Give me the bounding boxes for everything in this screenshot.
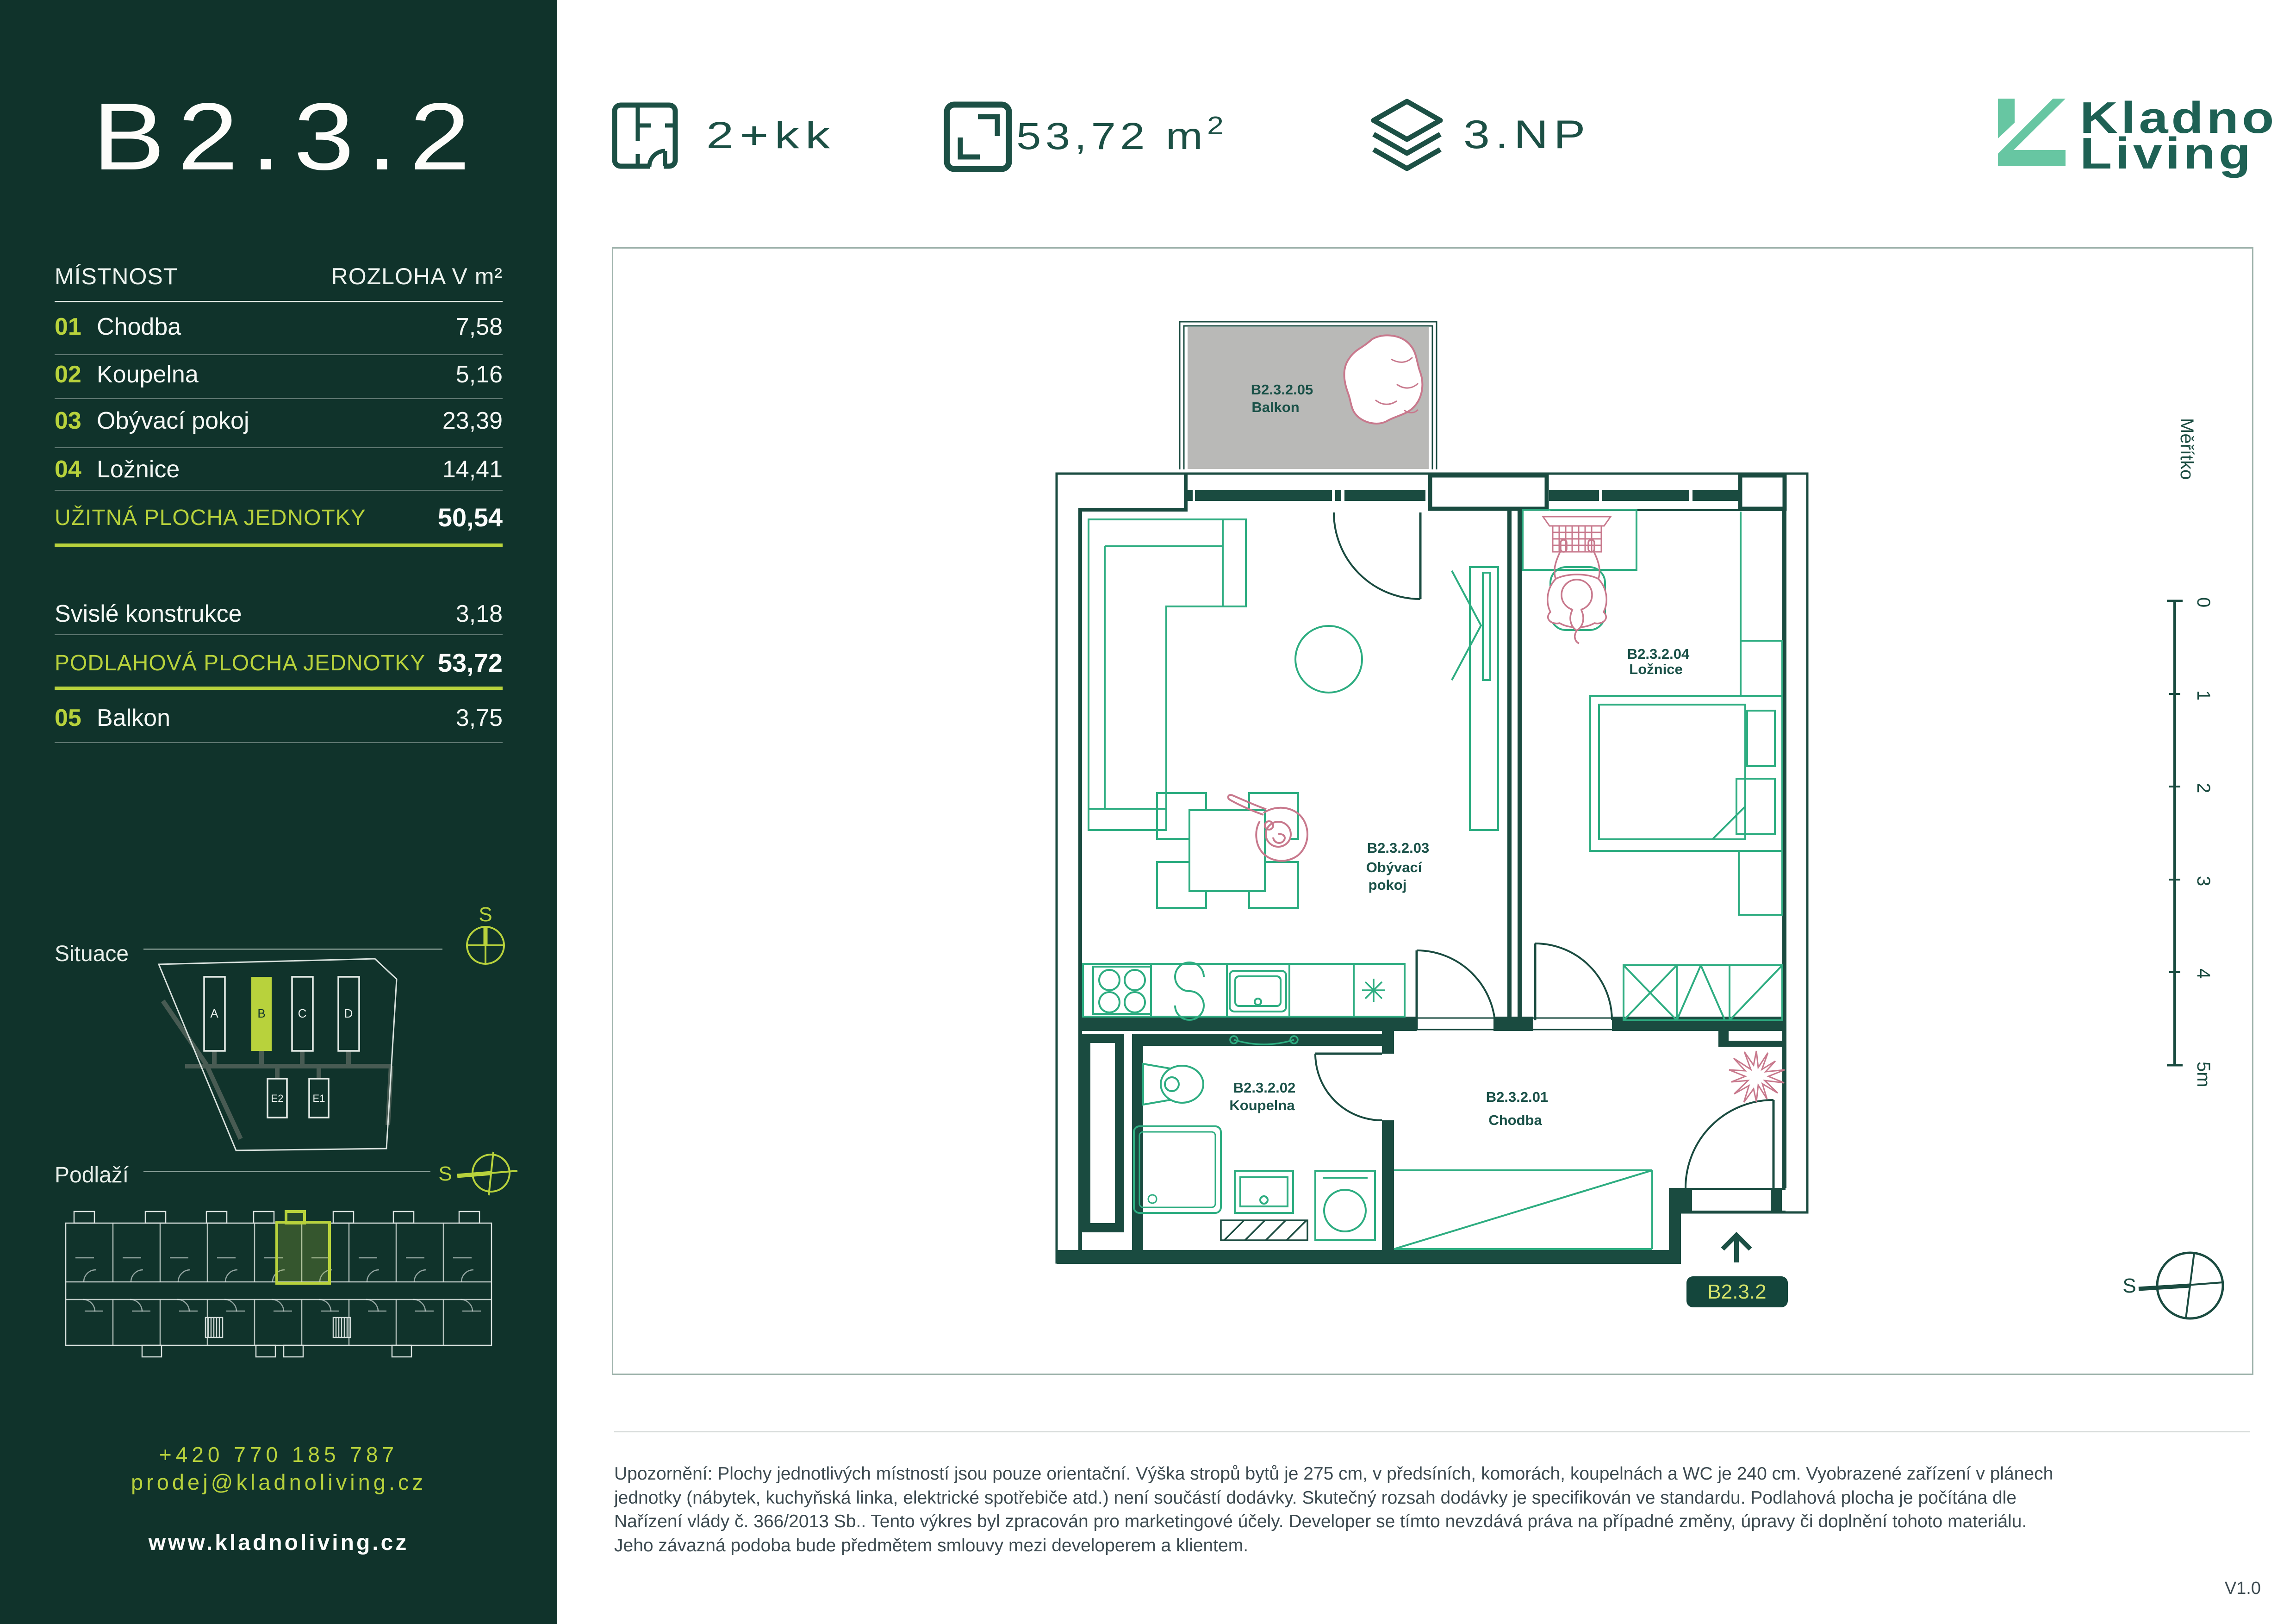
svg-text:S: S xyxy=(2122,1274,2136,1297)
svg-text:B2.3.2.01: B2.3.2.01 xyxy=(1486,1089,1548,1105)
svg-text:Měřítko: Měřítko xyxy=(2177,418,2197,480)
svg-text:B2.3.2.04: B2.3.2.04 xyxy=(1627,646,1690,662)
svg-text:Balkon: Balkon xyxy=(1251,399,1299,415)
svg-text:2: 2 xyxy=(2193,783,2214,793)
svg-text:B2.3.2: B2.3.2 xyxy=(1707,1280,1766,1303)
svg-text:pokoj: pokoj xyxy=(1369,877,1407,893)
svg-text:Obývací: Obývací xyxy=(1366,859,1423,875)
svg-text:Chodba: Chodba xyxy=(1488,1112,1542,1128)
svg-text:B2.3.2.02: B2.3.2.02 xyxy=(1233,1080,1295,1096)
svg-text:B2.3.2.03: B2.3.2.03 xyxy=(1367,840,1429,856)
svg-text:1: 1 xyxy=(2193,690,2214,700)
svg-text:4: 4 xyxy=(2193,968,2214,979)
svg-text:B2.3.2.05: B2.3.2.05 xyxy=(1251,381,1313,398)
svg-text:Koupelna: Koupelna xyxy=(1229,1097,1295,1113)
svg-text:5m: 5m xyxy=(2193,1062,2214,1087)
svg-text:Ložnice: Ložnice xyxy=(1629,661,1682,677)
svg-text:3: 3 xyxy=(2193,876,2214,886)
svg-text:0: 0 xyxy=(2193,597,2214,607)
